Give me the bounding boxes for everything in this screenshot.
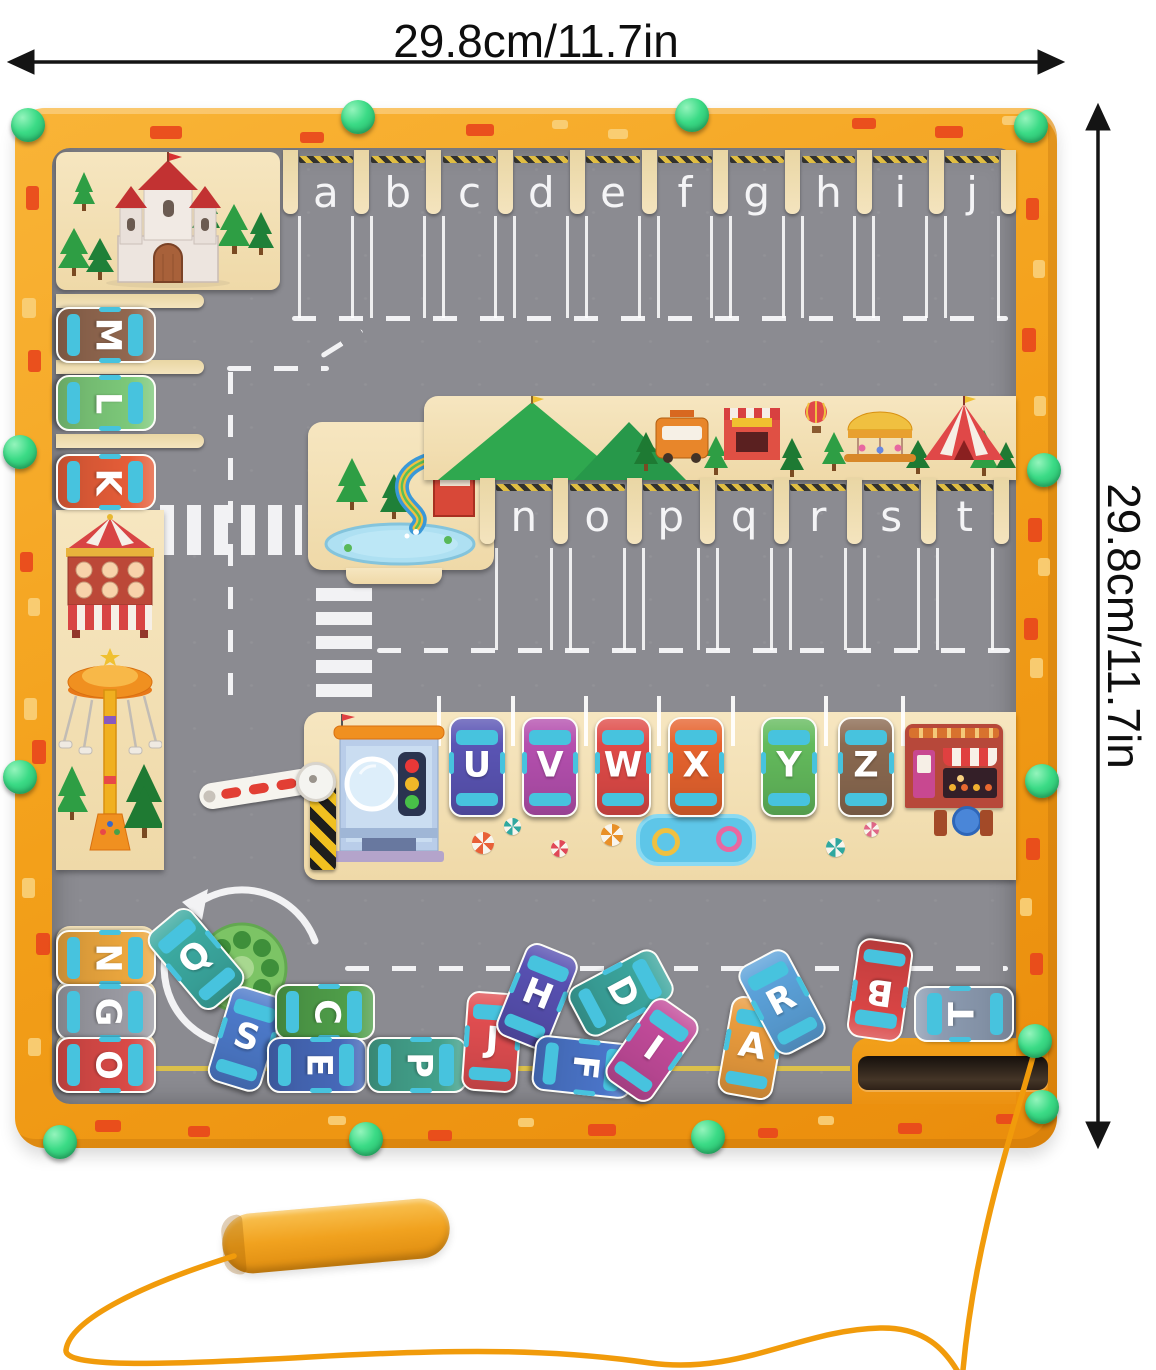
frame-brick xyxy=(1033,260,1045,278)
car-window xyxy=(278,1044,291,1086)
slot-divider xyxy=(56,434,204,448)
slot-divider xyxy=(283,150,298,214)
letter-car-m[interactable]: M xyxy=(56,307,156,363)
car-letter: B xyxy=(851,968,908,1015)
frame-brick xyxy=(95,1120,121,1132)
frame-brick xyxy=(28,1038,41,1056)
frame-brick xyxy=(188,1126,210,1137)
slot-divider xyxy=(921,478,936,544)
car-window xyxy=(67,991,80,1033)
letter-car-w[interactable]: W xyxy=(595,717,651,817)
parking-tick xyxy=(511,696,515,746)
hazard-stripe xyxy=(802,156,856,163)
candy-decoration xyxy=(504,818,521,835)
frame-brick xyxy=(1030,658,1043,678)
car-letter: N xyxy=(88,932,128,984)
carnival-booth-illustration xyxy=(60,512,160,642)
letter-car-t[interactable]: T xyxy=(914,986,1014,1042)
frame-brick xyxy=(22,298,36,318)
frame-brick xyxy=(22,878,35,898)
car-window xyxy=(67,937,80,979)
swim-ring-icon xyxy=(652,828,680,856)
slot-divider xyxy=(994,478,1009,544)
hazard-stripe xyxy=(496,484,552,491)
parking-tick xyxy=(584,696,588,746)
candy-decoration xyxy=(551,840,568,857)
right-dimension-label: 29.8cm/11.7in xyxy=(1097,483,1151,769)
board-knob xyxy=(11,108,45,142)
frame-brick xyxy=(466,124,494,136)
slot-divider xyxy=(498,150,513,214)
slot-divider xyxy=(700,478,715,544)
swing-ride-illustration xyxy=(58,646,162,862)
candy-decoration xyxy=(472,832,494,854)
frame-brick xyxy=(1024,618,1038,640)
parking-slot-letter: r xyxy=(781,494,855,540)
car-window xyxy=(128,314,143,356)
parking-slot-letter: p xyxy=(634,494,708,540)
frame-brick xyxy=(898,1123,922,1134)
car-letter: U xyxy=(451,745,503,785)
car-letter: Z xyxy=(840,745,892,785)
car-window xyxy=(339,1044,354,1086)
crosswalk xyxy=(160,505,302,555)
slot-divider xyxy=(570,150,585,214)
cafe-chair xyxy=(934,810,947,836)
frame-brick xyxy=(935,126,963,138)
parking-slot-outline xyxy=(936,548,994,650)
slot-divider xyxy=(627,478,642,544)
hazard-stripe xyxy=(730,156,784,163)
car-window xyxy=(128,937,143,979)
hazard-stripe xyxy=(586,156,640,163)
car-window xyxy=(542,1042,559,1085)
frame-brick xyxy=(28,350,41,372)
letter-car-o[interactable]: O xyxy=(56,1037,156,1093)
hazard-stripe xyxy=(717,484,773,491)
car-letter: P xyxy=(399,1039,439,1091)
road-dash-line xyxy=(227,366,329,371)
board-knob xyxy=(3,760,37,794)
slot-divider xyxy=(426,150,441,214)
car-window xyxy=(378,1044,391,1086)
castle-illustration xyxy=(56,152,280,290)
car-window xyxy=(845,793,887,806)
board-knob xyxy=(1014,109,1048,143)
car-window xyxy=(768,730,810,745)
frame-brick xyxy=(1030,953,1043,975)
slot-divider xyxy=(929,150,944,214)
parking-slot-letter: o xyxy=(561,494,635,540)
parking-tick xyxy=(824,696,828,746)
parking-slot-outline xyxy=(569,548,627,650)
car-letter: T xyxy=(942,988,982,1040)
parking-slot-letter: d xyxy=(505,170,577,216)
frame-brick xyxy=(32,740,46,764)
car-window xyxy=(725,1070,769,1090)
hazard-stripe xyxy=(643,484,699,491)
parking-tick xyxy=(731,696,735,746)
frame-brick xyxy=(328,1116,346,1125)
slot-divider xyxy=(857,150,872,214)
car-window xyxy=(675,730,717,745)
parking-slot-letter: t xyxy=(928,494,1002,540)
car-window xyxy=(67,1044,80,1086)
candy-decoration xyxy=(864,822,879,837)
car-window xyxy=(529,793,571,806)
car-letter: E xyxy=(299,1039,339,1091)
shop-window xyxy=(943,768,997,798)
slot-divider xyxy=(785,150,800,214)
frame-brick xyxy=(300,132,324,143)
hazard-stripe xyxy=(790,484,846,491)
shop-sign-band xyxy=(909,728,999,738)
slot-divider xyxy=(1001,150,1016,214)
scenery-strip xyxy=(424,396,1016,480)
cafe-chair xyxy=(980,810,993,836)
board-knob xyxy=(1027,453,1061,487)
slot-divider xyxy=(847,478,862,544)
car-letter: M xyxy=(88,309,128,361)
board-knob xyxy=(43,1125,77,1159)
car-window xyxy=(529,730,571,745)
frame-brick xyxy=(518,1118,534,1127)
slot-divider xyxy=(774,478,789,544)
car-window xyxy=(67,382,80,424)
car-letter: O xyxy=(88,1039,128,1091)
car-letter: C xyxy=(307,986,347,1038)
car-window xyxy=(675,793,717,806)
hazard-stripe xyxy=(443,156,497,163)
letter-car-x[interactable]: X xyxy=(668,717,724,817)
car-letter: L xyxy=(88,377,128,429)
car-window xyxy=(128,991,143,1033)
mini-pool-decoration xyxy=(636,814,756,866)
parking-slot-outline xyxy=(729,216,785,318)
board-knob xyxy=(1025,764,1059,798)
hazard-stripe xyxy=(570,484,626,491)
car-window xyxy=(215,1058,259,1083)
car-window xyxy=(990,993,1003,1035)
parking-slot-outline xyxy=(298,216,354,318)
frame-brick xyxy=(1026,198,1039,220)
frame-brick xyxy=(28,598,40,616)
shop-awning xyxy=(943,748,997,766)
parking-slot-letter: e xyxy=(577,170,649,216)
frame-brick xyxy=(1038,558,1050,576)
car-letter: V xyxy=(524,745,576,785)
parking-slot-outline xyxy=(716,548,774,650)
barrier-pivot xyxy=(296,762,336,802)
parking-slot-letter: s xyxy=(855,494,929,540)
slot-divider xyxy=(553,478,568,544)
frame-brick xyxy=(552,120,568,129)
cafe-table xyxy=(952,806,982,836)
frame-brick xyxy=(588,1124,616,1136)
car-window xyxy=(768,793,810,806)
parking-slot-letter: b xyxy=(362,170,434,216)
parking-slot-outline xyxy=(442,216,498,318)
letter-car-l[interactable]: L xyxy=(56,375,156,431)
board-knob xyxy=(1025,1090,1059,1124)
letter-car-n[interactable]: N xyxy=(56,930,156,986)
letter-car-v[interactable]: V xyxy=(522,717,578,817)
parking-slot-outline xyxy=(657,216,713,318)
frame-brick xyxy=(1028,518,1042,542)
magnetic-pen[interactable] xyxy=(220,1196,452,1276)
frame-brick xyxy=(1020,898,1032,916)
toy-product-photo: 29.8cm/11.7in 29.8cm/11.7in abcdefghijno… xyxy=(0,0,1156,1370)
frame-slot-notch xyxy=(858,1056,1048,1090)
candy-decoration xyxy=(601,824,623,846)
car-window xyxy=(863,948,906,967)
parking-slot-letter: g xyxy=(721,170,793,216)
parking-slot-outline xyxy=(642,548,700,650)
hazard-stripe xyxy=(873,156,927,163)
car-window xyxy=(67,314,80,356)
parking-slot-letter: n xyxy=(487,494,561,540)
parking-slot-letter: h xyxy=(793,170,865,216)
swim-ring-icon xyxy=(716,826,742,852)
parking-slot-letter: j xyxy=(936,170,1008,216)
car-window xyxy=(128,461,143,503)
car-letter: G xyxy=(88,986,128,1038)
parking-slot-letter: f xyxy=(649,170,721,216)
parking-slot-outline xyxy=(801,216,857,318)
car-window xyxy=(439,1044,454,1086)
board-knob xyxy=(349,1122,383,1156)
panel-tab xyxy=(346,568,442,584)
frame-brick xyxy=(1034,396,1046,416)
board-knob xyxy=(341,100,375,134)
car-window xyxy=(845,730,887,745)
car-window xyxy=(602,793,644,806)
parking-slot-outline xyxy=(495,548,553,650)
car-window xyxy=(347,991,362,1033)
frame-brick xyxy=(1022,328,1036,352)
car-letter: F xyxy=(562,1039,607,1095)
car-window xyxy=(128,1044,143,1086)
parking-slot-letter: a xyxy=(290,170,362,216)
letter-car-u[interactable]: U xyxy=(449,717,505,817)
frame-brick xyxy=(36,933,50,955)
slot-divider xyxy=(480,478,495,544)
hazard-stripe xyxy=(299,156,353,163)
letter-car-k[interactable]: K xyxy=(56,454,156,510)
parking-slot-outline xyxy=(585,216,641,318)
hazard-stripe xyxy=(658,156,712,163)
parking-slot-outline xyxy=(944,216,1000,318)
parking-slot-letter: i xyxy=(864,170,936,216)
slot-divider xyxy=(642,150,657,214)
parking-slot-letter: c xyxy=(434,170,506,216)
frame-brick xyxy=(818,1116,834,1125)
board-knob xyxy=(3,435,37,469)
frame-brick xyxy=(20,552,33,572)
letter-car-g[interactable]: G xyxy=(56,984,156,1040)
vending-machine xyxy=(913,750,935,798)
hazard-stripe xyxy=(371,156,425,163)
parking-slot-letter: q xyxy=(708,494,782,540)
slot-divider xyxy=(713,150,728,214)
letter-car-z[interactable]: Z xyxy=(838,717,894,817)
car-letter: W xyxy=(597,745,649,785)
car-window xyxy=(456,730,498,745)
car-window xyxy=(602,730,644,745)
frame-brick xyxy=(758,1128,778,1138)
board-knob xyxy=(1018,1024,1052,1058)
car-window xyxy=(456,793,498,806)
frame-brick xyxy=(852,118,876,129)
letter-car-c[interactable]: C xyxy=(275,984,375,1040)
hazard-stripe xyxy=(937,484,993,491)
hazard-stripe xyxy=(945,156,999,163)
top-dimension-label: 29.8cm/11.7in xyxy=(393,14,679,68)
car-letter: X xyxy=(670,745,722,785)
frame-brick xyxy=(1026,838,1040,860)
car-window xyxy=(468,1066,511,1082)
candy-decoration xyxy=(826,838,845,857)
board-knob xyxy=(691,1120,725,1154)
slot-divider xyxy=(354,150,369,214)
toll-station-illustration xyxy=(332,710,446,864)
car-window xyxy=(67,461,80,503)
car-letter: Y xyxy=(763,745,815,785)
carnival-panel xyxy=(56,510,164,870)
parking-slot-outline xyxy=(872,216,928,318)
car-letter: K xyxy=(88,456,128,508)
crosswalk xyxy=(316,588,372,706)
parking-slot-outline xyxy=(789,548,847,650)
letter-car-e[interactable]: E xyxy=(267,1037,367,1093)
hazard-stripe xyxy=(514,156,568,163)
fairground-scenery-illustration xyxy=(424,396,1016,480)
frame-brick xyxy=(996,1114,1016,1124)
cafe-shop-illustration xyxy=(905,724,1003,808)
letter-car-y[interactable]: Y xyxy=(761,717,817,817)
frame-brick xyxy=(24,698,37,720)
parking-slot-outline xyxy=(370,216,426,318)
car-window xyxy=(286,991,299,1033)
frame-brick xyxy=(608,129,628,139)
car-window xyxy=(927,993,942,1035)
hazard-stripe xyxy=(864,484,920,491)
board-knob xyxy=(675,98,709,132)
parking-slot-outline xyxy=(513,216,569,318)
car-window xyxy=(128,382,143,424)
letter-car-p[interactable]: P xyxy=(367,1037,467,1093)
parking-slot-outline xyxy=(863,548,921,650)
frame-brick xyxy=(428,1130,452,1141)
frame-brick xyxy=(26,186,39,210)
castle-panel xyxy=(56,152,280,290)
parking-tick xyxy=(657,696,661,746)
frame-brick xyxy=(150,126,182,139)
slot-divider xyxy=(56,294,204,308)
